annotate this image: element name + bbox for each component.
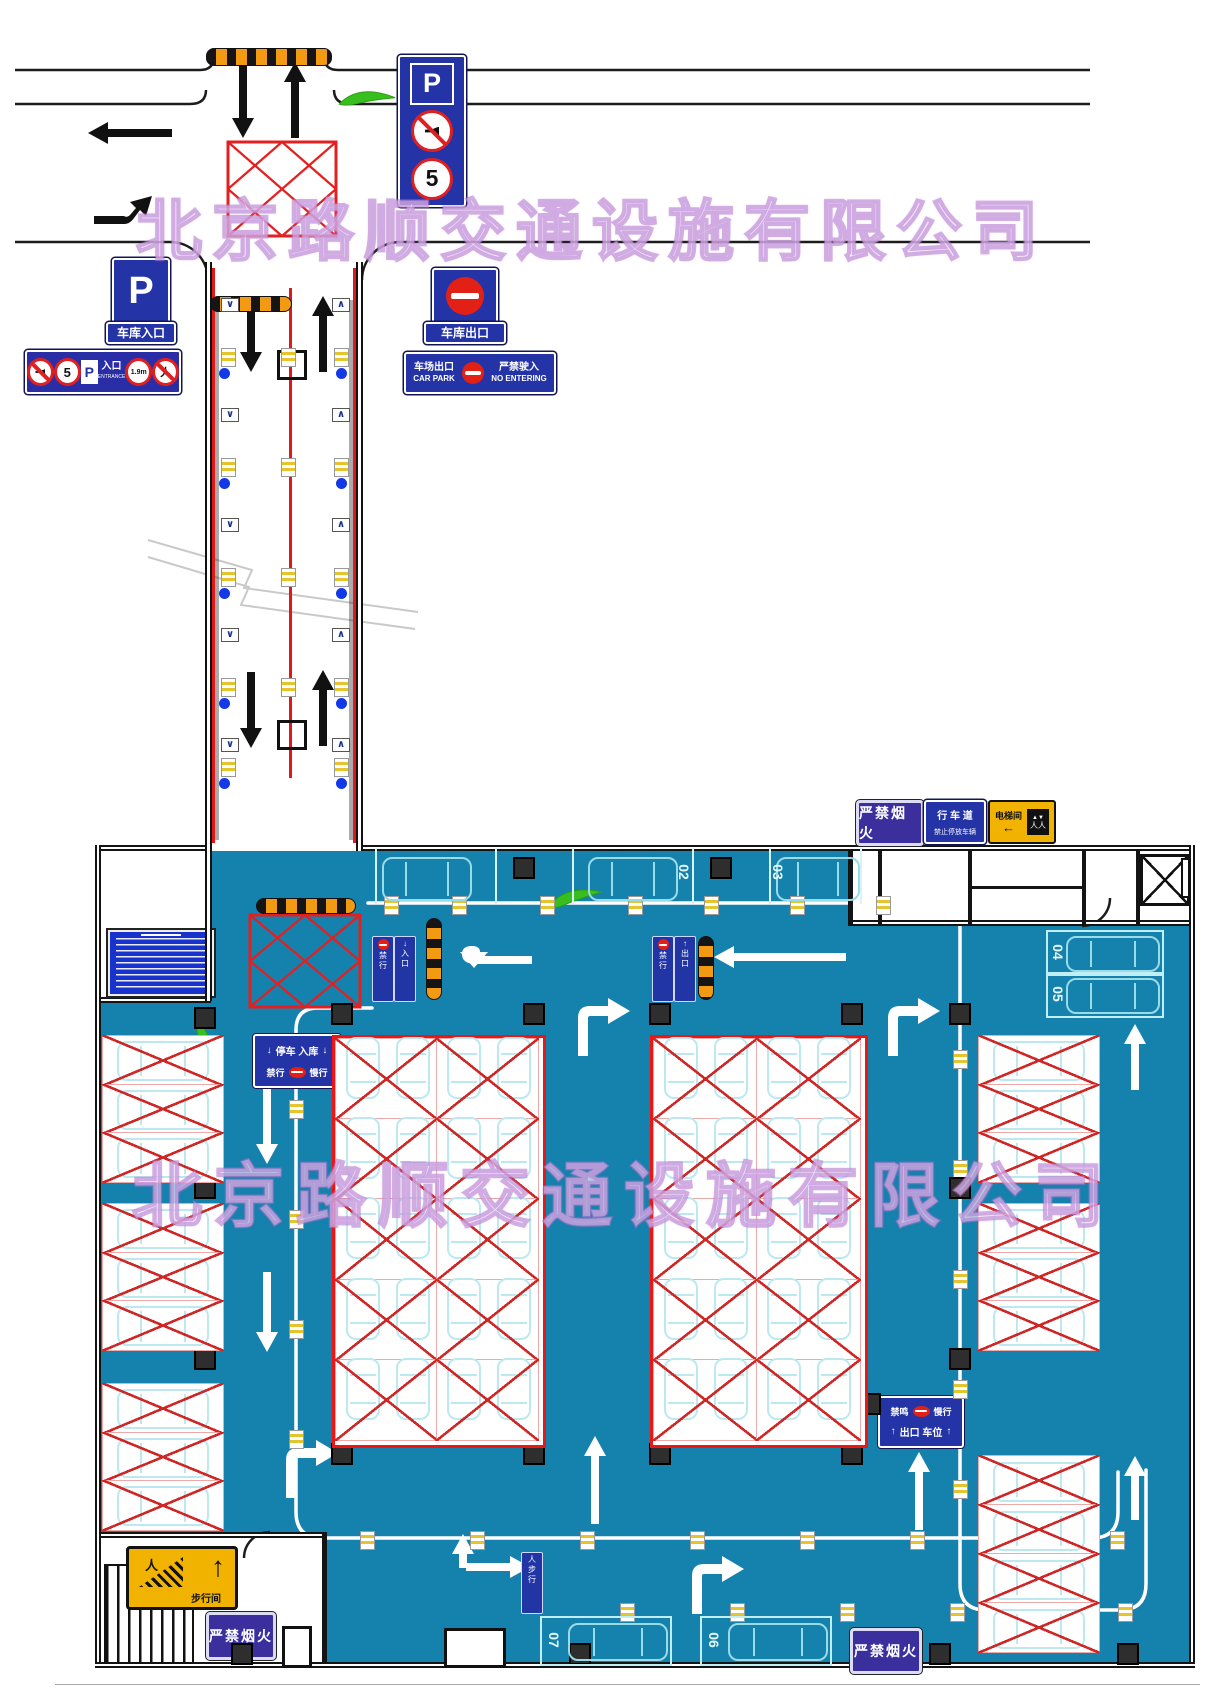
car: [1066, 978, 1160, 1014]
stall-x-mark: [978, 1252, 1100, 1303]
blue-dot-marker: [336, 778, 347, 789]
parking-stall: [756, 1198, 861, 1280]
stall-x-mark: [978, 1504, 1100, 1555]
parking-stall: [978, 1602, 1100, 1653]
parking-stall: [102, 1203, 224, 1254]
parking-stall: [335, 1198, 438, 1280]
parking-stall: [102, 1132, 224, 1183]
light-fixture: [334, 678, 349, 697]
parking-stall: [102, 1480, 224, 1531]
stall-x-mark: [436, 1359, 539, 1441]
light-fixture: [281, 568, 296, 587]
stall-x-mark: [978, 1602, 1100, 1653]
parking-stall: [978, 1504, 1100, 1555]
parking-stall: [335, 1118, 438, 1200]
parking-stall: [978, 1035, 1100, 1086]
light-fixture: [221, 678, 236, 697]
mini-sign-char: 行: [528, 1575, 536, 1584]
junction-marker: [840, 1603, 855, 1622]
parking-stall: [335, 1359, 438, 1441]
light-fixture: [334, 348, 349, 367]
stall-number: 02: [676, 864, 692, 880]
stall-x-mark: [756, 1118, 861, 1200]
parking-stall: 07: [540, 1616, 672, 1666]
structural-column: [1117, 1643, 1139, 1665]
parking-stall: [102, 1383, 224, 1434]
junction-marker: [289, 1320, 304, 1339]
structural-column: [231, 1643, 253, 1665]
stall-number: 05: [1050, 986, 1066, 1002]
light-fixture: [221, 758, 236, 777]
parking-stall: [653, 1198, 758, 1280]
structural-column: [194, 1348, 216, 1370]
light-fixture: [281, 348, 296, 367]
stall-divider: [572, 848, 574, 904]
parking-stall: 06: [700, 1616, 832, 1666]
stall-x-mark: [436, 1198, 539, 1280]
structural-column: [194, 1007, 216, 1029]
parking-stall: [335, 1038, 438, 1120]
stall-number: 06: [706, 1632, 722, 1648]
junction-marker: [580, 1531, 595, 1550]
stall-x-mark: [978, 1084, 1100, 1135]
junction-marker: [470, 1531, 485, 1550]
stall-x-mark: [756, 1359, 861, 1441]
parking-stall: [436, 1359, 539, 1441]
mini-sign-char: 行: [379, 961, 387, 970]
stall-x-mark: [436, 1118, 539, 1200]
stall-x-mark: [978, 1132, 1100, 1183]
blue-dot-marker: [219, 368, 230, 379]
junction-marker: [953, 1270, 968, 1289]
parking-stall: [978, 1553, 1100, 1604]
junction-marker: [289, 1100, 304, 1119]
parking-stall: [335, 1279, 438, 1361]
junction-marker: [953, 1480, 968, 1499]
chevron-marker: ∨: [221, 518, 239, 532]
parking-stall: [978, 1132, 1100, 1183]
parking-stall: [978, 1084, 1100, 1135]
pedestrian-icon: 人: [528, 1555, 536, 1564]
parking-stall: [756, 1038, 861, 1120]
structural-column: [949, 1348, 971, 1370]
chevron-marker: ∨: [221, 408, 239, 422]
light-fixture: [281, 458, 296, 477]
stall-x-mark: [102, 1432, 224, 1483]
mini-sign-char: 步: [528, 1565, 536, 1574]
structural-column: [929, 1643, 951, 1665]
stall-number: 03: [770, 864, 786, 880]
structural-column: [841, 1003, 863, 1025]
junction-marker: [1118, 1603, 1133, 1622]
junction-marker: [704, 896, 719, 915]
junction-marker: [876, 896, 891, 915]
car: [776, 857, 860, 901]
stall-x-mark: [102, 1132, 224, 1183]
parking-stall: [102, 1300, 224, 1351]
blue-dot-marker: [336, 478, 347, 489]
chevron-marker: ∨: [221, 628, 239, 642]
stall-x-mark: [978, 1203, 1100, 1254]
stall-x-mark: [978, 1553, 1100, 1604]
stall-x-mark: [653, 1359, 758, 1441]
car: [568, 1623, 668, 1661]
stall-x-mark: [102, 1084, 224, 1135]
stall-number: 04: [1050, 944, 1066, 960]
stall-x-mark: [978, 1455, 1100, 1506]
stall-x-mark: [335, 1359, 438, 1441]
blue-dot-marker: [219, 778, 230, 789]
parking-stall: [756, 1118, 861, 1200]
parking-stall: [653, 1359, 758, 1441]
stall-x-mark: [756, 1198, 861, 1280]
junction-marker: [289, 1210, 304, 1229]
parking-stall: 04: [1046, 930, 1164, 976]
mini-sign-char: 禁: [379, 951, 387, 960]
junction-marker: [953, 1050, 968, 1069]
parking-stall: [978, 1203, 1100, 1254]
stall-x-mark: [335, 1198, 438, 1280]
stall-number: 07: [546, 1632, 562, 1648]
light-fixture: [334, 758, 349, 777]
parking-stall: [102, 1035, 224, 1086]
parking-stall: [102, 1252, 224, 1303]
stall-divider: [692, 848, 694, 904]
mini-sign-char: 入: [401, 949, 409, 958]
stall-x-mark: [978, 1300, 1100, 1351]
blue-dot-marker: [336, 588, 347, 599]
mini-sign-char: 口: [401, 959, 409, 968]
parking-stall: [436, 1279, 539, 1361]
stall-x-mark: [436, 1279, 539, 1361]
junction-marker: [910, 1531, 925, 1550]
car: [588, 857, 678, 901]
blue-dot-marker: [219, 698, 230, 709]
parking-stall: 05: [1046, 972, 1164, 1018]
parking-facility-plan: P 5 P 车库入口 5 P 入口 ENTRANCE 1.9m 人 车库出口 车…: [0, 0, 1218, 1694]
junction-marker: [690, 1531, 705, 1550]
chevron-marker: ∧: [332, 628, 350, 642]
stall-divider: [860, 848, 862, 904]
mini-sign-char: 出: [681, 949, 689, 958]
generated-plan-content: ∨∧∨∧∨∧∨∧∨∧020304050706禁行↓入口禁行↑出口人步行: [0, 0, 1218, 1694]
stall-x-mark: [102, 1300, 224, 1351]
chevron-marker: ∧: [332, 408, 350, 422]
chevron-marker: ∧: [332, 738, 350, 752]
parking-stall: [436, 1198, 539, 1280]
stall-x-mark: [102, 1252, 224, 1303]
mini-sign-char: 行: [659, 961, 667, 970]
structural-column: [523, 1003, 545, 1025]
mini-direction-sign: ↑出口: [674, 936, 696, 1002]
stall-x-mark: [653, 1118, 758, 1200]
mini-sign-char: 禁: [659, 951, 667, 960]
blue-dot-marker: [336, 368, 347, 379]
stall-divider: [495, 848, 497, 904]
stall-x-mark: [335, 1279, 438, 1361]
mini-direction-sign: 禁行: [372, 936, 394, 1002]
blue-dot-marker: [336, 698, 347, 709]
light-fixture: [334, 458, 349, 477]
light-fixture: [334, 568, 349, 587]
chevron-marker: ∧: [332, 518, 350, 532]
parking-stall: [102, 1084, 224, 1135]
car: [382, 857, 472, 901]
stall-x-mark: [335, 1118, 438, 1200]
car: [1066, 936, 1160, 972]
structural-column: [331, 1003, 353, 1025]
stall-x-mark: [436, 1038, 539, 1120]
light-fixture: [221, 568, 236, 587]
mini-direction-sign: 禁行: [652, 936, 674, 1002]
parking-stall: [756, 1279, 861, 1361]
stall-x-mark: [102, 1383, 224, 1434]
light-fixture: [281, 678, 296, 697]
structural-column: [949, 1003, 971, 1025]
junction-marker: [540, 896, 555, 915]
structural-column: [513, 857, 535, 879]
chevron-marker: ∨: [221, 298, 239, 312]
down-arrow-icon: ↓: [403, 939, 407, 948]
stall-x-mark: [653, 1038, 758, 1120]
junction-marker: [950, 1603, 965, 1622]
mini-direction-sign: ↓入口: [394, 936, 416, 1002]
blue-dot-marker: [219, 588, 230, 599]
mini-direction-sign: 人步行: [521, 1552, 543, 1614]
no-entry-icon: [378, 939, 389, 950]
stall-x-mark: [978, 1035, 1100, 1086]
junction-marker: [953, 1380, 968, 1399]
parking-stall: [102, 1432, 224, 1483]
blue-dot-marker: [219, 478, 230, 489]
stall-divider: [375, 848, 377, 904]
structural-column: [649, 1003, 671, 1025]
stall-x-mark: [756, 1038, 861, 1120]
stall-x-mark: [102, 1035, 224, 1086]
parking-stall: [653, 1118, 758, 1200]
stall-x-mark: [653, 1198, 758, 1280]
structural-column: [710, 857, 732, 879]
junction-marker: [1110, 1531, 1125, 1550]
stall-x-mark: [102, 1480, 224, 1531]
stall-x-mark: [335, 1038, 438, 1120]
structural-column: [949, 1177, 971, 1199]
junction-marker: [800, 1531, 815, 1550]
parking-stall: [978, 1252, 1100, 1303]
light-fixture: [221, 348, 236, 367]
parking-stall: [978, 1455, 1100, 1506]
car: [728, 1623, 828, 1661]
light-fixture: [221, 458, 236, 477]
parking-stall: [436, 1118, 539, 1200]
parking-stall: [436, 1038, 539, 1120]
no-entry-icon: [658, 939, 669, 950]
stall-x-mark: [756, 1279, 861, 1361]
parking-stall: [653, 1038, 758, 1120]
stall-x-mark: [653, 1279, 758, 1361]
up-arrow-icon: ↑: [683, 939, 687, 948]
mini-sign-char: 口: [681, 959, 689, 968]
chevron-marker: ∧: [332, 298, 350, 312]
parking-stall: [653, 1279, 758, 1361]
parking-stall: [756, 1359, 861, 1441]
parking-stall: [978, 1300, 1100, 1351]
stall-x-mark: [102, 1203, 224, 1254]
chevron-marker: ∨: [221, 738, 239, 752]
junction-marker: [360, 1531, 375, 1550]
junction-marker: [289, 1430, 304, 1449]
